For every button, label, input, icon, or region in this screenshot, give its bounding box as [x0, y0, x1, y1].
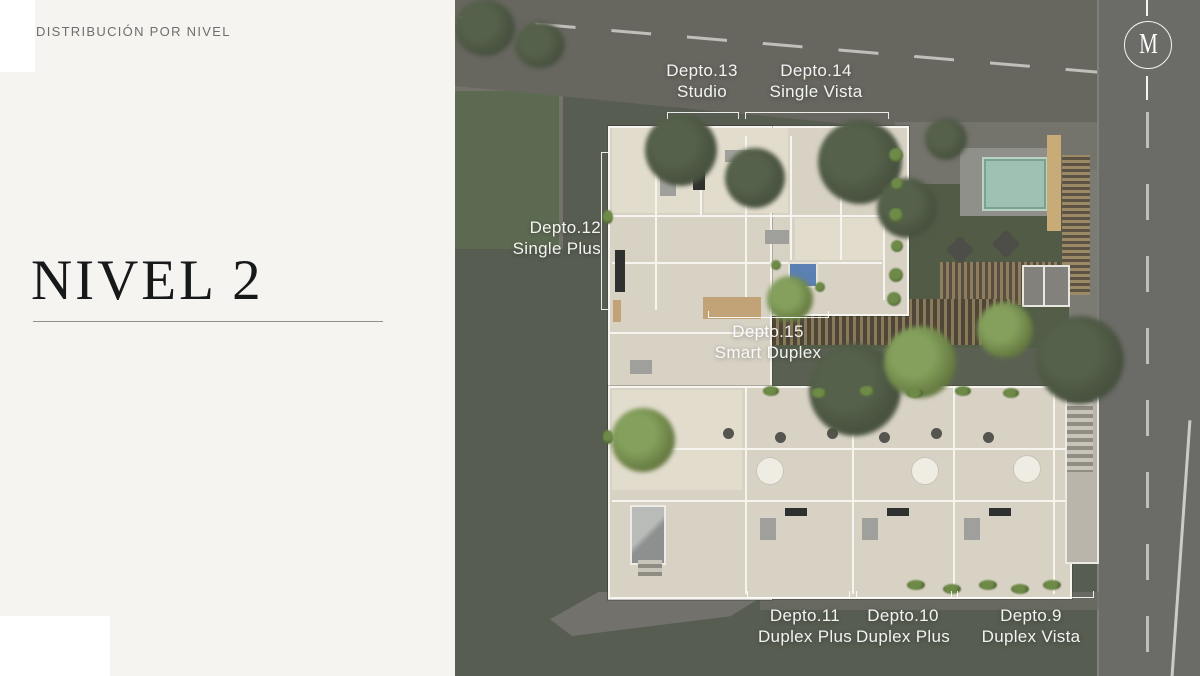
tree [611, 408, 675, 472]
corner-accent-top [0, 0, 35, 72]
room-floor [795, 218, 883, 260]
shrub [887, 292, 901, 306]
unit-type: Smart Duplex [683, 343, 853, 364]
left-panel: DISTRIBUCIÓN POR NIVEL NIVEL 2 [0, 0, 455, 676]
unit-type: Duplex Vista [946, 627, 1116, 648]
dining-table [1013, 455, 1041, 483]
tree [455, 0, 515, 56]
armchair [775, 432, 786, 443]
armchair [931, 428, 942, 439]
tree [877, 178, 937, 238]
kitchen-counter [615, 250, 625, 292]
corner-accent-bottom [0, 616, 110, 676]
slide-kicker: DISTRIBUCIÓN POR NIVEL [36, 24, 231, 39]
unit-bracket-depto-12 [601, 152, 608, 310]
shrub [907, 580, 925, 590]
wall [790, 136, 792, 260]
garden-table [996, 234, 1016, 254]
shrub [1043, 580, 1061, 590]
shrub [771, 260, 781, 270]
wall [1053, 388, 1055, 594]
shrub [889, 208, 903, 222]
stairs [638, 560, 662, 576]
shrub [1003, 388, 1019, 398]
armchair [723, 428, 734, 439]
logo-line-bottom [1146, 76, 1148, 100]
unit-number: Depto.15 [683, 322, 853, 343]
unit-bracket-depto-11 [747, 591, 850, 598]
logo-line-top [1146, 0, 1148, 16]
shrub [889, 148, 903, 162]
shrub [859, 386, 875, 396]
tree [884, 326, 956, 398]
shrub [891, 240, 903, 252]
slide: DISTRIBUCIÓN POR NIVEL NIVEL 2 De [0, 0, 1200, 676]
wall [745, 388, 747, 594]
unit-label-depto-15[interactable]: Depto.15 Smart Duplex [683, 322, 853, 363]
garden-table [950, 240, 970, 260]
unit-number: Depto.12 [455, 218, 601, 239]
dining-table [911, 457, 939, 485]
wall [612, 500, 1066, 502]
wall [612, 262, 882, 264]
shrub [603, 430, 613, 444]
bed [760, 518, 776, 540]
unit-type: Single Plus [455, 239, 601, 260]
armchair [879, 432, 890, 443]
unit-number: Depto.9 [946, 606, 1116, 627]
tree [725, 148, 785, 208]
wall [953, 388, 955, 594]
shrub [763, 386, 779, 396]
bed [862, 518, 878, 540]
floorplan-render: Depto.13 Studio Depto.14 Single Vista De… [455, 0, 1200, 676]
tree [925, 118, 967, 160]
kitchen-counter [887, 508, 909, 516]
wall [612, 215, 904, 217]
tree [645, 114, 717, 186]
brand-logo[interactable]: M [1124, 21, 1172, 69]
unit-bracket-depto-14 [745, 112, 889, 119]
tree [515, 22, 565, 68]
shrub [907, 388, 923, 398]
glass-elevator [630, 505, 666, 565]
unit-bracket-depto-10 [856, 591, 952, 598]
stairs [1067, 394, 1093, 472]
kitchen-counter [989, 508, 1011, 516]
title-underline [33, 321, 383, 322]
wood-detail [613, 300, 621, 322]
shrub [979, 580, 997, 590]
bed [630, 360, 652, 374]
wall [612, 448, 1066, 450]
kitchen-counter [785, 508, 807, 516]
tree [1036, 316, 1124, 404]
unit-bracket-depto-15 [708, 311, 829, 318]
unit-label-depto-14[interactable]: Depto.14 Single Vista [731, 61, 901, 102]
bed [964, 518, 980, 540]
shrub [815, 282, 825, 292]
unit-number: Depto.14 [731, 61, 901, 82]
unit-bracket-depto-13 [667, 112, 739, 119]
brand-logo-letter: M [1139, 29, 1158, 61]
shrub [889, 268, 903, 282]
shrub [811, 388, 827, 398]
tree [977, 302, 1033, 358]
unit-bracket-depto-9 [957, 591, 1094, 598]
unit-type: Single Vista [731, 82, 901, 103]
unit-label-depto-9[interactable]: Depto.9 Duplex Vista [946, 606, 1116, 647]
page-title: NIVEL 2 [31, 248, 264, 313]
unit-label-depto-12[interactable]: Depto.12 Single Plus [455, 218, 601, 259]
shrub [955, 386, 971, 396]
shrub [891, 178, 903, 190]
armchair [983, 432, 994, 443]
dining-table [756, 457, 784, 485]
sofa [765, 230, 789, 244]
